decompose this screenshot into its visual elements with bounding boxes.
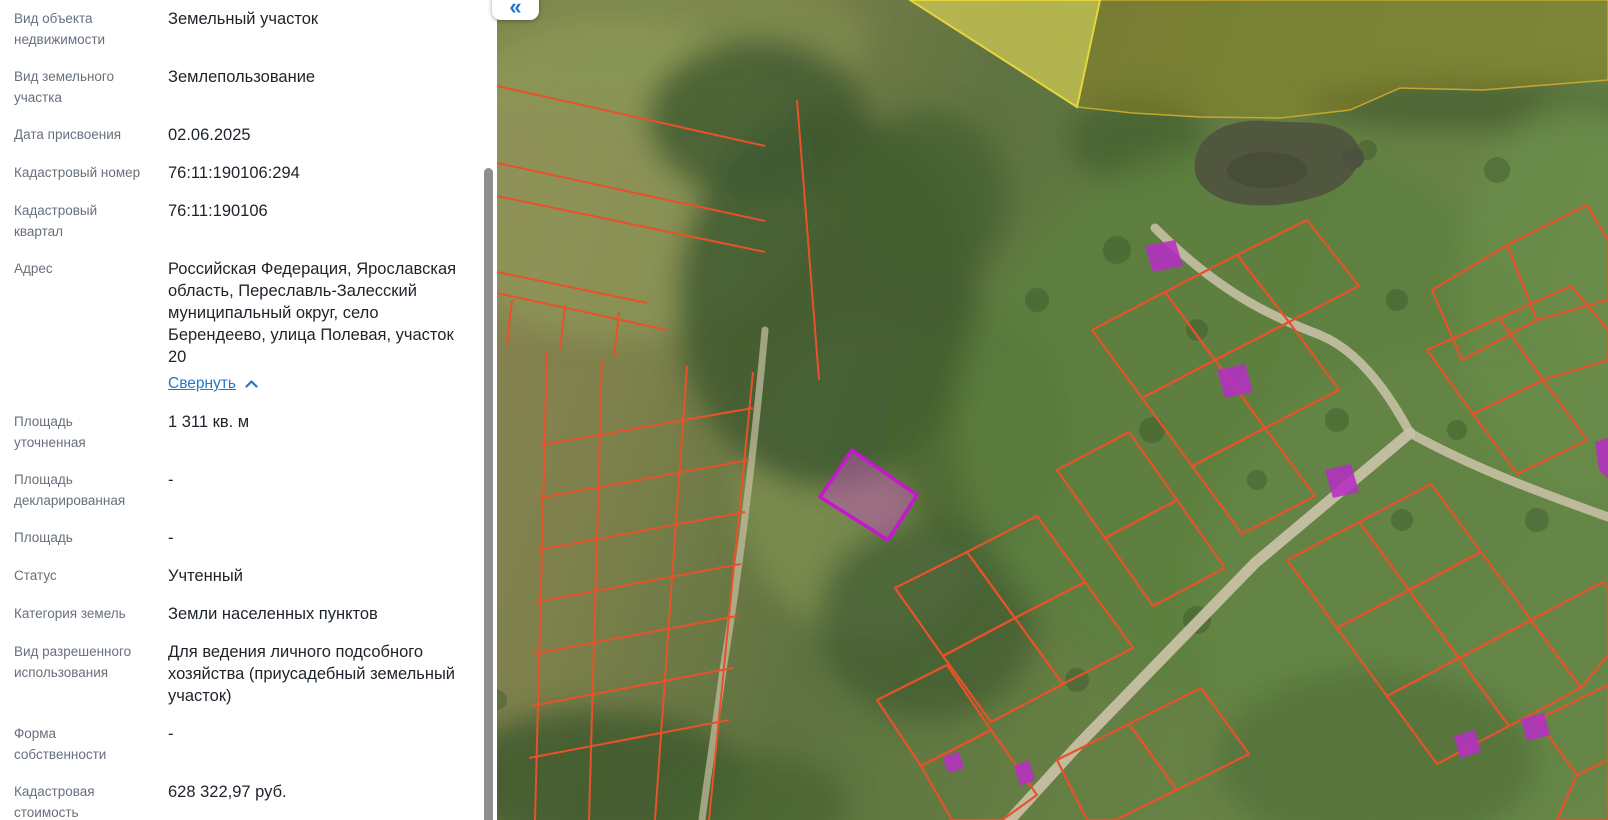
attribute-row: Кадастровый квартал 76:11:190106	[0, 200, 485, 242]
attribute-value: Землепользование	[168, 66, 469, 88]
attribute-label: Дата присвоения	[14, 124, 168, 145]
attribute-value: 76:11:190106:294	[168, 162, 469, 184]
attribute-value: Для ведения личного подсобного хозяйства…	[168, 641, 469, 707]
attribute-value: 628 322,97 руб.	[168, 781, 469, 803]
attribute-label: Кадастровый номер	[14, 162, 168, 183]
attribute-value: Земельный участок	[168, 8, 469, 30]
attribute-value: 02.06.2025	[168, 124, 469, 146]
attribute-value: -	[168, 723, 469, 745]
parcel-info-panel: Вид объекта недвижимости Земельный участ…	[0, 0, 485, 820]
attribute-row: Дата присвоения 02.06.2025	[0, 124, 485, 146]
attribute-label: Вид объекта недвижимости	[14, 8, 168, 50]
attribute-value: Российская Федерация, Ярославская област…	[168, 258, 469, 395]
attribute-label: Адрес	[14, 258, 168, 279]
attribute-label: Статус	[14, 565, 168, 586]
collapse-panel-button[interactable]: «	[492, 0, 539, 20]
double-chevron-left-icon: «	[509, 0, 521, 19]
attribute-row: Вид разрешенного использования Для веден…	[0, 641, 485, 707]
attribute-row: Кадастровая стоимость 628 322,97 руб.	[0, 781, 485, 820]
attribute-row: Вид земельного участка Землепользование	[0, 66, 485, 108]
attribute-row: Площадь декларированная -	[0, 469, 485, 511]
attribute-label: Вид земельного участка	[14, 66, 168, 108]
attribute-value: 1 311 кв. м	[168, 411, 469, 433]
attribute-row-address: Адрес Российская Федерация, Ярославская …	[0, 258, 485, 395]
attribute-row: Статус Учтенный	[0, 565, 485, 587]
attribute-label: Форма собственности	[14, 723, 168, 765]
attribute-value: -	[168, 527, 469, 549]
attribute-label: Площадь уточненная	[14, 411, 168, 453]
attribute-label: Площадь	[14, 527, 168, 548]
attribute-value: Учтенный	[168, 565, 469, 587]
attribute-row: Категория земель Земли населенных пункто…	[0, 603, 485, 625]
cadastral-map[interactable]	[497, 0, 1608, 820]
panel-scrollbar-thumb[interactable]	[484, 168, 493, 820]
chevron-up-icon	[245, 380, 258, 388]
attribute-value: -	[168, 469, 469, 491]
attribute-label: Кадастровый квартал	[14, 200, 168, 242]
attribute-value: 76:11:190106	[168, 200, 469, 222]
address-text: Российская Федерация, Ярославская област…	[168, 260, 456, 366]
attribute-row: Вид объекта недвижимости Земельный участ…	[0, 8, 485, 50]
attribute-label: Категория земель	[14, 603, 168, 624]
attribute-row: Кадастровый номер 76:11:190106:294	[0, 162, 485, 184]
attribute-row: Площадь -	[0, 527, 485, 549]
collapse-address-label: Свернуть	[168, 373, 236, 395]
attribute-value: Земли населенных пунктов	[168, 603, 469, 625]
attribute-label: Вид разрешенного использования	[14, 641, 168, 683]
attribute-label: Площадь декларированная	[14, 469, 168, 511]
attribute-row: Форма собственности -	[0, 723, 485, 765]
attribute-label: Кадастровая стоимость	[14, 781, 168, 820]
collapse-address-link[interactable]: Свернуть	[168, 373, 258, 395]
attribute-row: Площадь уточненная 1 311 кв. м	[0, 411, 485, 453]
